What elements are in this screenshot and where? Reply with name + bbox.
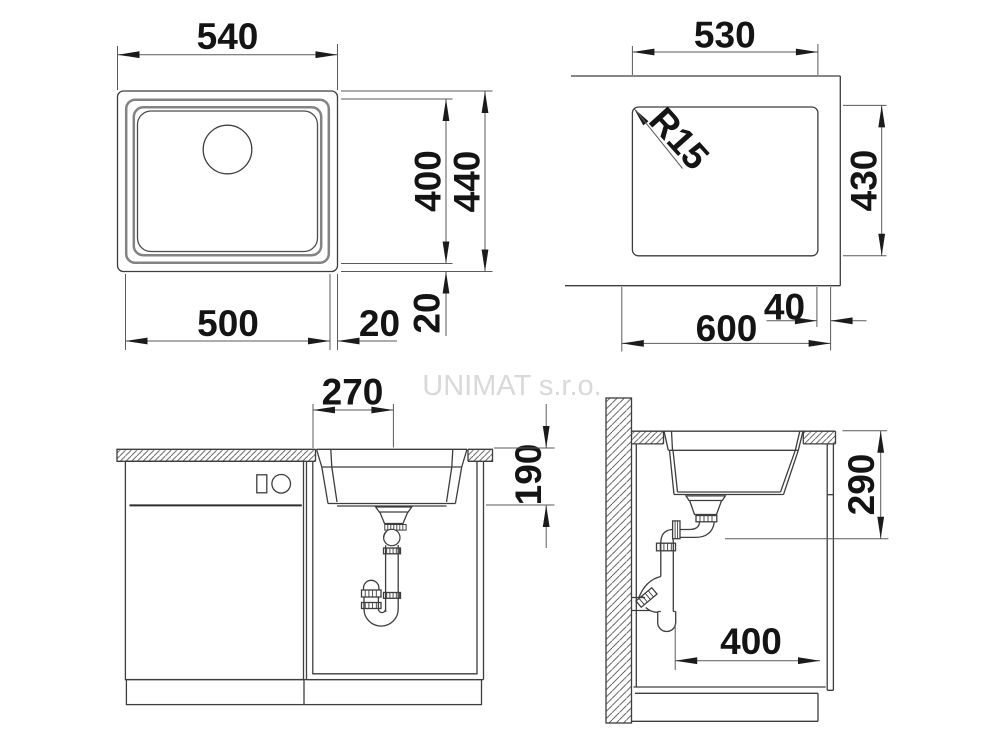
svg-text:430: 430: [844, 150, 885, 212]
svg-text:500: 500: [197, 303, 259, 344]
svg-text:290: 290: [841, 454, 882, 516]
svg-text:190: 190: [508, 444, 549, 506]
svg-text:540: 540: [197, 16, 259, 57]
svg-text:530: 530: [694, 15, 756, 56]
svg-text:270: 270: [322, 372, 384, 413]
svg-text:20: 20: [407, 292, 448, 333]
svg-text:400: 400: [720, 621, 782, 662]
svg-text:440: 440: [447, 151, 488, 213]
svg-text:UNIMAT s.r.o.: UNIMAT s.r.o.: [422, 370, 601, 402]
svg-text:20: 20: [359, 303, 400, 344]
svg-text:600: 600: [696, 308, 758, 349]
svg-text:400: 400: [408, 150, 449, 212]
